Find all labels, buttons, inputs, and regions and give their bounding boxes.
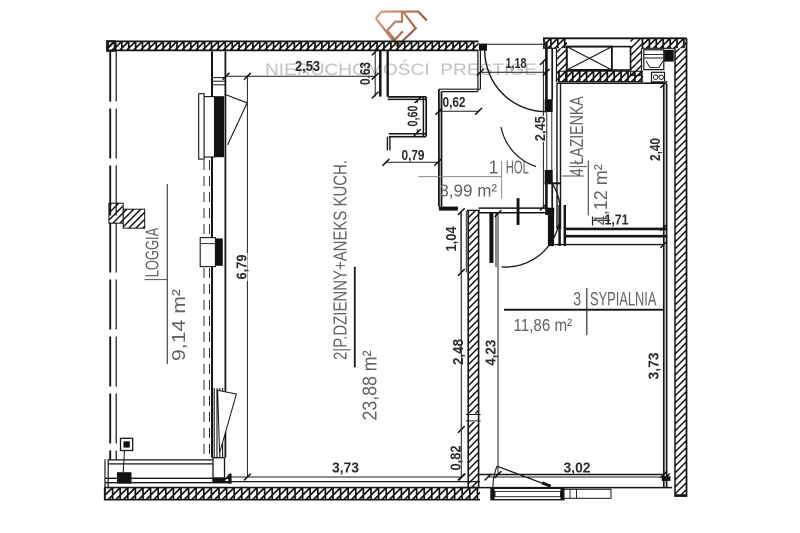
svg-text:0,62: 0,62 (443, 94, 466, 111)
svg-text:1,04: 1,04 (443, 226, 460, 252)
svg-text:2,40: 2,40 (647, 138, 664, 161)
svg-text:2,48: 2,48 (450, 339, 467, 365)
svg-text:2,45: 2,45 (532, 116, 549, 141)
svg-text:3,99 m²: 3,99 m² (439, 180, 497, 200)
svg-text:3,73: 3,73 (645, 353, 662, 380)
svg-text:1: 1 (488, 157, 498, 177)
svg-text:1,18: 1,18 (506, 55, 527, 72)
svg-text:0,60: 0,60 (405, 106, 422, 127)
svg-text:23,88 m²: 23,88 m² (360, 350, 382, 420)
svg-text:HOL: HOL (506, 157, 529, 177)
svg-text:4,12 m²: 4,12 m² (590, 164, 611, 225)
svg-text:0,79: 0,79 (402, 147, 425, 164)
svg-text:11,86 m²: 11,86 m² (514, 315, 573, 335)
svg-text:3,73: 3,73 (332, 460, 359, 477)
svg-text:3: 3 (573, 290, 581, 311)
svg-text:2|P.DZIENNY+ANEKS KUCH.: 2|P.DZIENNY+ANEKS KUCH. (330, 160, 351, 360)
svg-text:3,02: 3,02 (564, 460, 591, 477)
svg-text:4|ŁAZIENKA: 4|ŁAZIENKA (567, 96, 587, 176)
svg-text:6,79: 6,79 (233, 255, 250, 280)
svg-text:LOGGIA: LOGGIA (143, 228, 163, 278)
svg-text:0,82: 0,82 (448, 446, 465, 471)
svg-text:9,14 m²: 9,14 m² (168, 289, 189, 361)
svg-text:4,23: 4,23 (482, 340, 499, 366)
svg-text:SYPIALNIA: SYPIALNIA (590, 290, 657, 311)
svg-text:2,53: 2,53 (295, 58, 320, 75)
svg-text:0,63: 0,63 (357, 62, 374, 85)
